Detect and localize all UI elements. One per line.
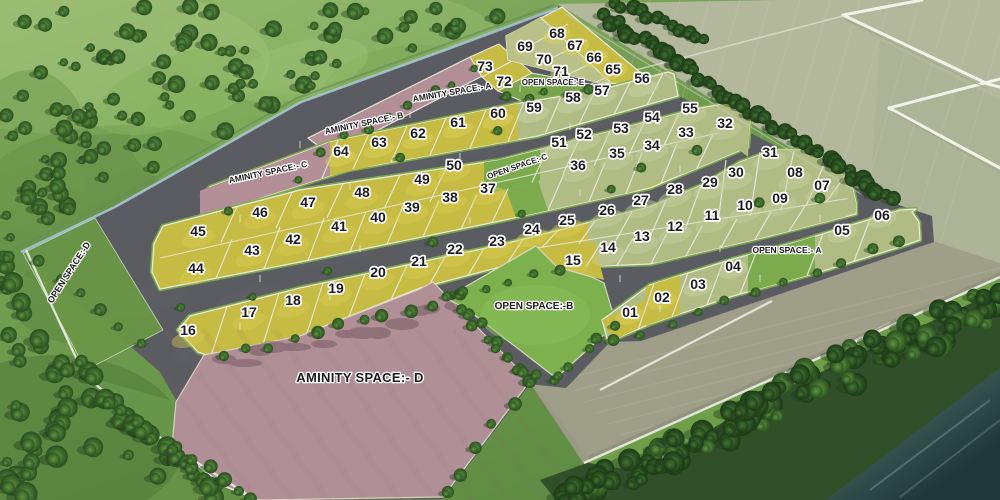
svg-text:21: 21 [411, 253, 427, 269]
svg-text:44: 44 [188, 260, 204, 276]
svg-text:50: 50 [446, 157, 462, 173]
svg-text:28: 28 [667, 181, 683, 197]
svg-text:43: 43 [244, 242, 260, 258]
svg-text:02: 02 [654, 289, 670, 305]
svg-text:14: 14 [600, 239, 616, 255]
svg-text:10: 10 [737, 197, 753, 213]
svg-text:05: 05 [834, 222, 850, 238]
svg-text:OPEN SPACE:-E: OPEN SPACE:-E [522, 78, 585, 87]
svg-text:19: 19 [328, 280, 344, 296]
svg-text:73: 73 [477, 58, 493, 74]
svg-text:45: 45 [190, 223, 206, 239]
svg-text:58: 58 [565, 89, 581, 105]
svg-text:03: 03 [690, 276, 706, 292]
svg-text:37: 37 [480, 180, 496, 196]
svg-text:61: 61 [450, 114, 466, 130]
svg-text:66: 66 [586, 49, 602, 65]
svg-text:59: 59 [526, 99, 542, 115]
svg-text:53: 53 [613, 120, 629, 136]
svg-text:18: 18 [285, 292, 301, 308]
svg-text:62: 62 [410, 125, 426, 141]
svg-text:46: 46 [252, 204, 268, 220]
svg-text:12: 12 [667, 218, 683, 234]
svg-text:11: 11 [705, 207, 720, 223]
svg-text:63: 63 [371, 134, 387, 150]
svg-text:32: 32 [717, 115, 733, 131]
svg-text:72: 72 [496, 73, 512, 89]
svg-text:07: 07 [814, 177, 830, 193]
svg-text:AMINITY SPACE:- D: AMINITY SPACE:- D [296, 370, 423, 385]
svg-text:67: 67 [567, 37, 583, 53]
svg-text:24: 24 [524, 221, 540, 237]
svg-text:16: 16 [180, 322, 196, 338]
svg-text:01: 01 [622, 304, 638, 320]
svg-text:64: 64 [333, 143, 349, 159]
svg-text:34: 34 [644, 137, 660, 153]
svg-text:56: 56 [634, 70, 650, 86]
svg-text:23: 23 [489, 233, 505, 249]
svg-text:51: 51 [551, 134, 567, 150]
svg-text:55: 55 [682, 100, 698, 116]
svg-text:49: 49 [414, 171, 430, 187]
svg-text:31: 31 [762, 144, 778, 160]
svg-text:36: 36 [570, 157, 586, 173]
svg-text:35: 35 [609, 145, 625, 161]
svg-text:08: 08 [787, 164, 803, 180]
svg-text:42: 42 [285, 231, 301, 247]
svg-text:OPEN SPACE:- A: OPEN SPACE:- A [753, 245, 822, 255]
svg-text:38: 38 [442, 189, 458, 205]
svg-text:47: 47 [300, 194, 316, 210]
svg-text:54: 54 [644, 109, 660, 125]
svg-text:71: 71 [553, 63, 569, 79]
svg-text:22: 22 [447, 241, 463, 257]
svg-text:30: 30 [728, 164, 744, 180]
svg-text:25: 25 [559, 212, 575, 228]
svg-text:57: 57 [594, 82, 610, 98]
svg-text:40: 40 [370, 209, 386, 225]
svg-text:69: 69 [517, 38, 533, 54]
svg-text:68: 68 [549, 25, 565, 41]
svg-text:41: 41 [331, 218, 347, 234]
svg-text:13: 13 [634, 228, 650, 244]
svg-text:52: 52 [576, 126, 592, 142]
svg-text:15: 15 [565, 252, 581, 268]
svg-text:OPEN SPACE:-B: OPEN SPACE:-B [495, 301, 574, 312]
svg-text:33: 33 [678, 124, 694, 140]
svg-text:09: 09 [772, 190, 788, 206]
svg-text:27: 27 [633, 192, 649, 208]
svg-text:60: 60 [490, 105, 506, 121]
svg-text:29: 29 [702, 174, 718, 190]
svg-text:39: 39 [404, 199, 420, 215]
svg-text:70: 70 [536, 51, 552, 67]
svg-text:04: 04 [725, 258, 741, 274]
svg-text:17: 17 [241, 304, 257, 320]
svg-text:06: 06 [874, 207, 890, 223]
svg-text:26: 26 [599, 202, 615, 218]
svg-text:20: 20 [370, 264, 386, 280]
svg-text:65: 65 [605, 61, 621, 77]
svg-text:48: 48 [354, 184, 370, 200]
